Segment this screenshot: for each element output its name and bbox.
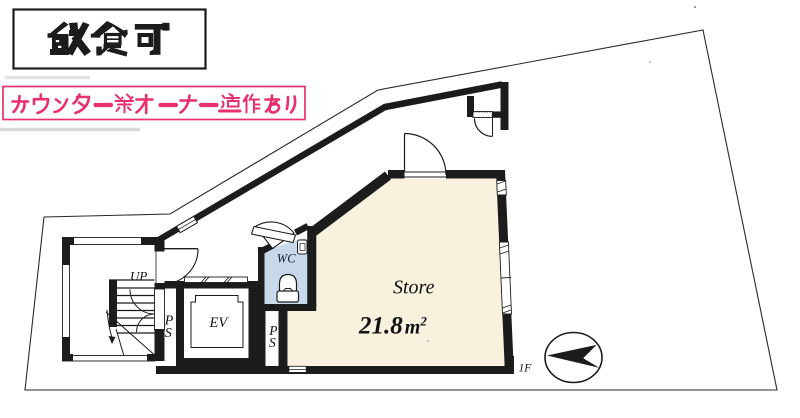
svg-text:EV: EV <box>209 315 230 331</box>
svg-text:21.8m2: 21.8m2 <box>358 313 427 340</box>
svg-text:WC: WC <box>277 252 296 266</box>
svg-text:S: S <box>165 326 172 341</box>
svg-text:UP: UP <box>130 269 147 284</box>
svg-text:1F: 1F <box>519 363 533 375</box>
svg-text:S: S <box>269 335 276 350</box>
svg-text:Store: Store <box>393 277 435 299</box>
